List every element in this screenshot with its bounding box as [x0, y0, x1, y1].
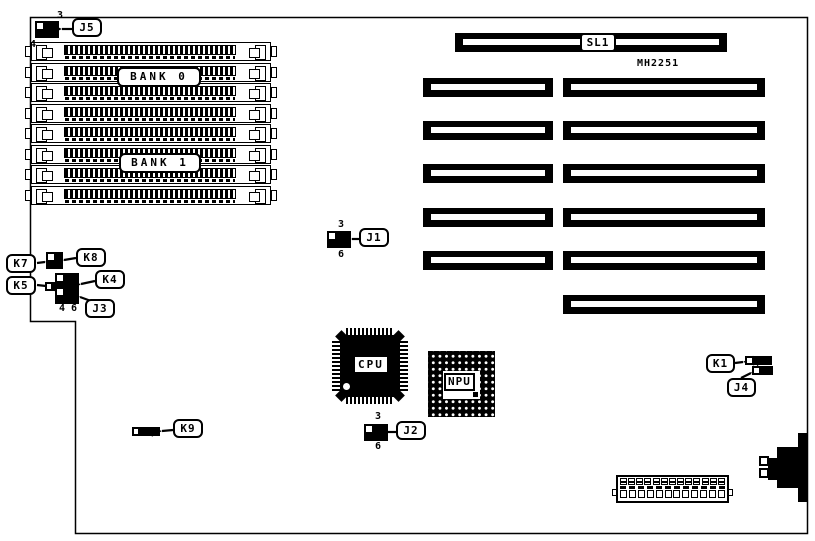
jumper-j5 — [35, 21, 59, 38]
callout-k7: K7 — [6, 254, 36, 273]
simm-socket — [31, 186, 271, 205]
expansion-slot — [563, 121, 765, 140]
jumper-j1 — [327, 231, 351, 248]
callout-j3: J3 — [85, 299, 115, 318]
npu-pin1-dot — [473, 392, 478, 397]
npu-chip: NPU — [428, 351, 495, 417]
callout-k1: K1 — [706, 354, 735, 373]
terminal-pin-row — [618, 490, 727, 498]
expansion-slot — [563, 164, 765, 183]
simm-socket — [31, 104, 271, 123]
j3-pin6-number: 6 — [71, 304, 77, 314]
cpu-pin1-dot — [343, 383, 350, 390]
simm-socket — [31, 42, 271, 61]
expansion-slot — [423, 164, 553, 183]
j3-pin4-number: 4 — [59, 304, 65, 314]
keyboard-connector-pin — [759, 468, 769, 478]
callout-k9: K9 — [173, 419, 203, 438]
j2-pin6-number: 6 — [375, 442, 381, 452]
npu-label: NPU — [444, 373, 475, 391]
j2-pin3-number: 3 — [375, 412, 381, 422]
j5-pin4-number: 4 — [30, 40, 36, 50]
terminal-divider — [620, 486, 725, 489]
connector-k1 — [745, 356, 772, 365]
expansion-slot — [423, 78, 553, 97]
callout-j2: J2 — [396, 421, 426, 440]
leader-k8 — [64, 258, 76, 260]
part-number-text: MH2251 — [637, 58, 679, 69]
j1-pin3-number: 3 — [338, 220, 344, 230]
expansion-slot — [563, 208, 765, 227]
leader-k4 — [81, 281, 95, 284]
callout-j4: J4 — [727, 378, 756, 397]
callout-k8: K8 — [76, 248, 106, 267]
expansion-slot — [423, 121, 553, 140]
callout-k4: K4 — [95, 270, 125, 289]
sl1-label: SL1 — [580, 33, 616, 52]
keyboard-connector-pin — [759, 456, 769, 466]
leader-k7 — [37, 262, 45, 263]
connector-k8 — [46, 252, 63, 269]
simm-socket — [31, 124, 271, 143]
leader-k9 — [162, 430, 173, 431]
j1-pin6-number: 6 — [338, 250, 344, 260]
leader-k1 — [735, 362, 743, 363]
expansion-slot — [563, 78, 765, 97]
jumper-j3 — [55, 273, 79, 304]
callout-j1: J1 — [359, 228, 389, 247]
bank1-label: BANK 1 — [119, 153, 201, 173]
connector-k9 — [132, 427, 160, 436]
expansion-slot — [563, 295, 765, 314]
expansion-slot — [423, 208, 553, 227]
expansion-slot — [423, 251, 553, 270]
bank0-label: BANK 0 — [117, 67, 201, 87]
motherboard-diagram: BANK 0 BANK 1 SL1 MH2251 3 4 J5 3 6 J1 3… — [0, 0, 815, 541]
callout-k5: K5 — [6, 276, 36, 295]
cpu-chip: CPU — [332, 328, 408, 404]
expansion-slot — [563, 251, 765, 270]
cpu-label: CPU — [355, 357, 387, 372]
connector-j4 — [752, 366, 773, 375]
power-terminal-block — [616, 475, 729, 503]
callout-j5: J5 — [72, 18, 102, 37]
terminal-screw-row — [618, 477, 727, 485]
jumper-j2 — [364, 424, 388, 441]
j5-pin3-number: 3 — [57, 11, 63, 21]
